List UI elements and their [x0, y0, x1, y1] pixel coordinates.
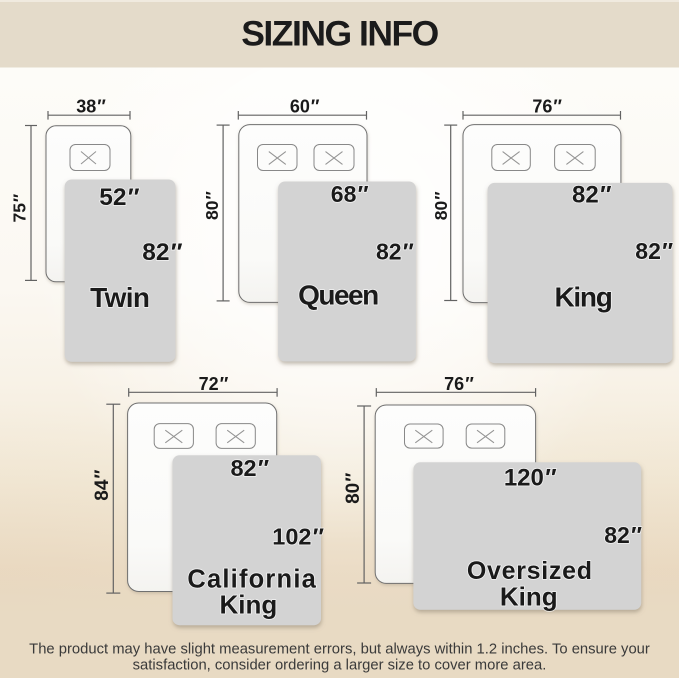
svg-text:King: King [500, 582, 558, 612]
svg-text:King: King [220, 590, 278, 620]
svg-text:82″: 82″ [572, 182, 612, 209]
svg-text:Queen: Queen [298, 280, 378, 311]
svg-text:82″: 82″ [142, 239, 182, 266]
svg-text:60″: 60″ [290, 97, 320, 117]
svg-text:82″: 82″ [635, 238, 673, 264]
svg-text:SIZING INFO: SIZING INFO [241, 14, 438, 54]
svg-text:satisfaction, consider orderin: satisfaction, consider ordering a larger… [133, 658, 547, 674]
svg-text:80″: 80″ [343, 473, 364, 504]
svg-text:120″: 120″ [504, 464, 557, 491]
svg-text:52″: 52″ [99, 184, 139, 211]
svg-text:76″: 76″ [444, 374, 474, 394]
svg-text:80″: 80″ [202, 191, 222, 219]
svg-text:72″: 72″ [199, 374, 229, 394]
svg-text:Twin: Twin [90, 282, 149, 313]
svg-text:84″: 84″ [92, 470, 113, 501]
svg-text:King: King [554, 281, 611, 312]
svg-text:82″: 82″ [604, 522, 642, 548]
svg-text:82″: 82″ [376, 238, 414, 264]
svg-text:The product may have slight me: The product may have slight measurement … [29, 642, 650, 658]
svg-text:76″: 76″ [532, 97, 562, 117]
svg-text:102″: 102″ [272, 524, 324, 550]
svg-text:38″: 38″ [76, 97, 106, 117]
svg-text:82″: 82″ [230, 455, 269, 481]
svg-text:80″: 80″ [431, 192, 451, 220]
svg-text:68″: 68″ [331, 181, 369, 207]
svg-text:75″: 75″ [9, 194, 29, 222]
